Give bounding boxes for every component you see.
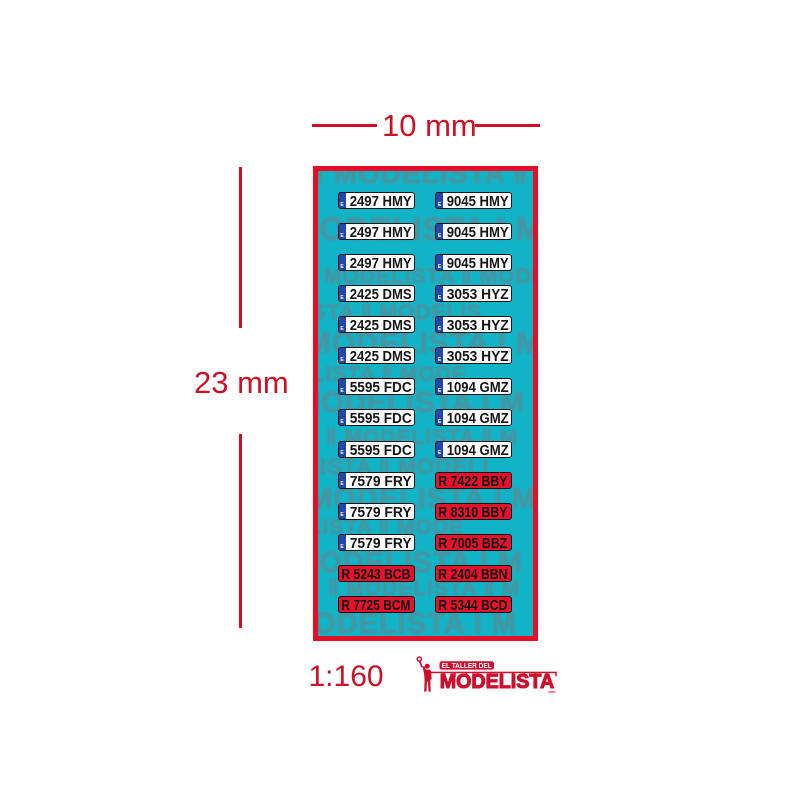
svg-text:EL TALLER DEL: EL TALLER DEL: [442, 661, 492, 670]
svg-text:R 5243 BCB: R 5243 BCB: [341, 566, 410, 580]
svg-text:R 2404 BBN: R 2404 BBN: [438, 566, 507, 580]
svg-text:1094 GMZ: 1094 GMZ: [447, 379, 509, 393]
svg-text:5595 FDC: 5595 FDC: [349, 410, 411, 424]
svg-text:7579 FRY: 7579 FRY: [349, 504, 411, 518]
svg-text:9045 HMY: 9045 HMY: [447, 193, 509, 207]
svg-text:2425 DMS: 2425 DMS: [349, 286, 411, 300]
svg-text:.com: .com: [548, 690, 556, 694]
svg-text:5595 FDC: 5595 FDC: [349, 442, 411, 456]
svg-text:3053 HYZ: 3053 HYZ: [447, 348, 509, 362]
svg-text:2425 DMS: 2425 DMS: [349, 317, 411, 331]
svg-text:3053 HYZ: 3053 HYZ: [447, 317, 509, 331]
svg-text:1094 GMZ: 1094 GMZ: [447, 410, 509, 424]
svg-text:2497 HMY: 2497 HMY: [349, 193, 411, 207]
svg-text:7579 FRY: 7579 FRY: [349, 535, 411, 549]
svg-text:‖ MODELISTA ‖ M: ‖ MODELISTA ‖ M: [318, 171, 533, 189]
svg-text:2425 DMS: 2425 DMS: [349, 348, 411, 362]
svg-text:1094 GMZ: 1094 GMZ: [447, 442, 509, 456]
svg-text:R 5344 BCD: R 5344 BCD: [438, 597, 507, 611]
svg-text:3053 HYZ: 3053 HYZ: [447, 286, 509, 300]
svg-text:R 8310 BBY: R 8310 BBY: [438, 504, 507, 518]
svg-text:2497 HMY: 2497 HMY: [349, 224, 411, 238]
svg-text:7579 FRY: 7579 FRY: [349, 473, 411, 487]
svg-text:R 7725 BCM: R 7725 BCM: [341, 597, 410, 611]
svg-text:9045 HMY: 9045 HMY: [447, 224, 509, 238]
svg-text:R 7005 BBZ: R 7005 BBZ: [438, 535, 507, 549]
svg-text:5595 FDC: 5595 FDC: [349, 379, 411, 393]
svg-text:R 7422 BBY: R 7422 BBY: [438, 473, 507, 487]
svg-text:2497 HMY: 2497 HMY: [349, 255, 411, 269]
svg-text:MODELISTA: MODELISTA: [440, 671, 555, 693]
svg-text:9045 HMY: 9045 HMY: [447, 255, 509, 269]
